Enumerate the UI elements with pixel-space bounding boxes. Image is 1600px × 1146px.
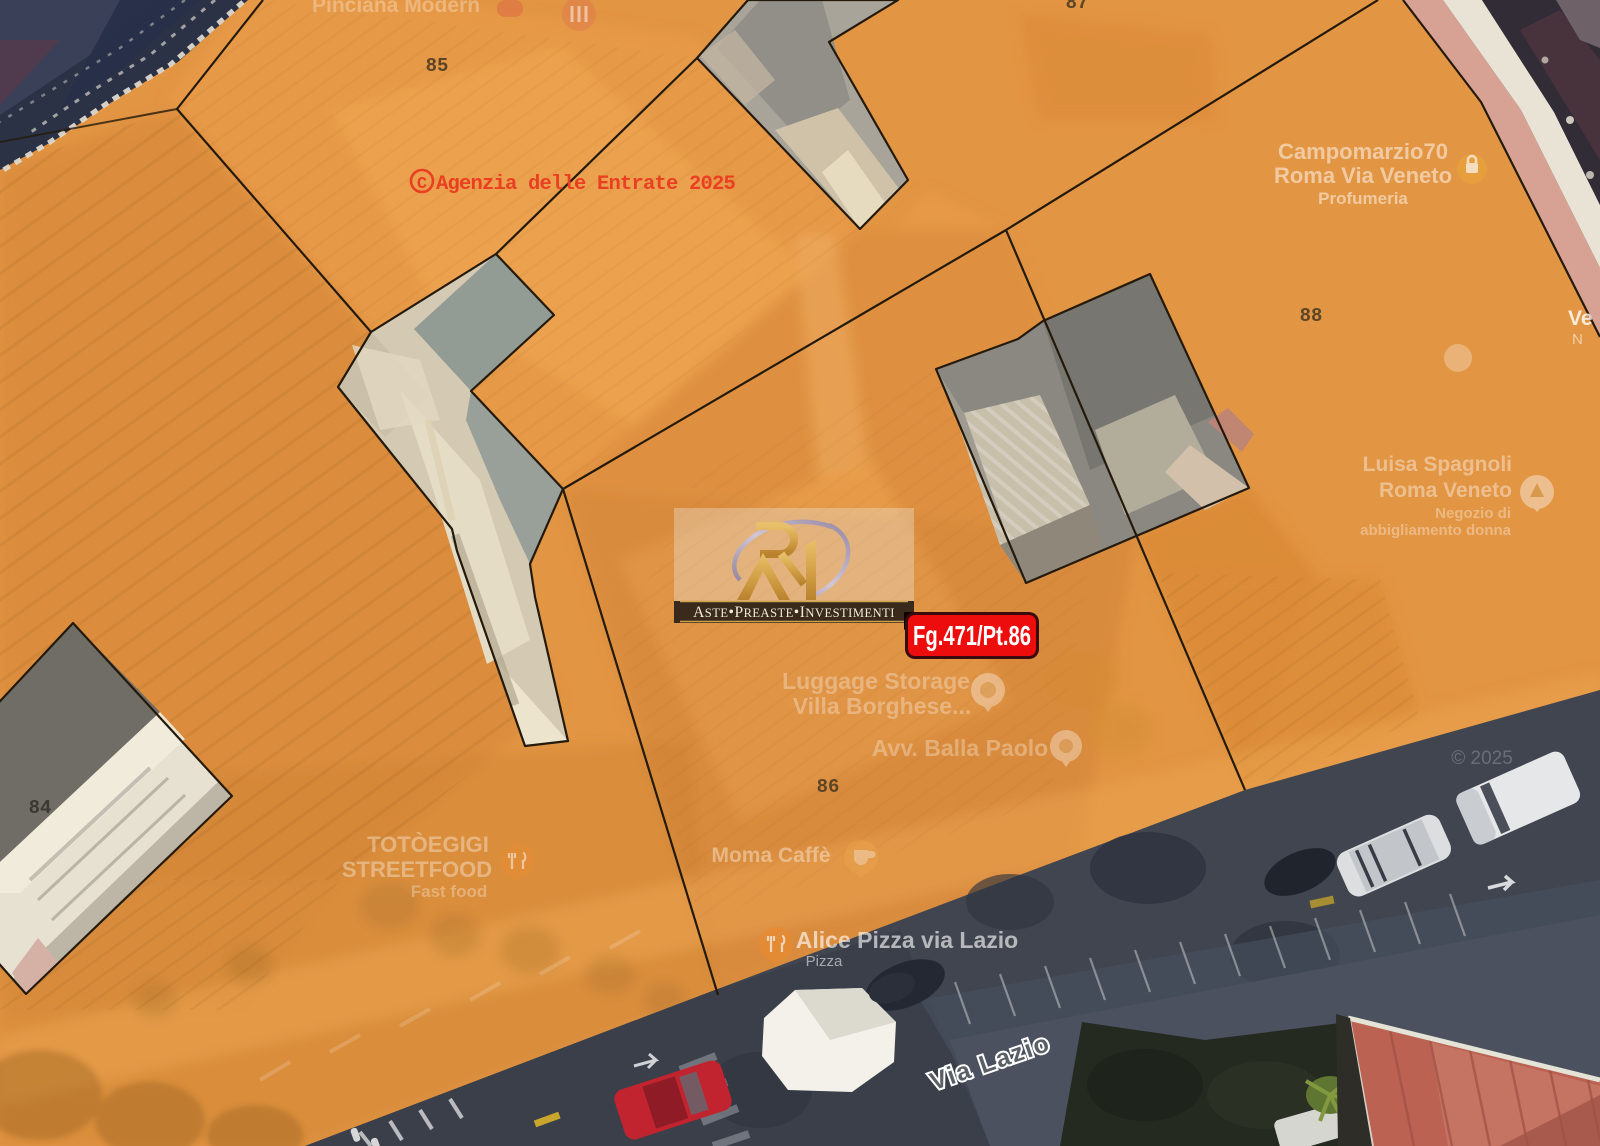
- svg-text:abbigliamento donna: abbigliamento donna: [1360, 522, 1511, 539]
- svg-text:Negozio di: Negozio di: [1435, 505, 1511, 522]
- svg-text:ASTE•PREASTE•INVESTIMENTI: ASTE•PREASTE•INVESTIMENTI: [693, 604, 895, 621]
- svg-text:Fg.471/Pt.86: Fg.471/Pt.86: [913, 620, 1031, 651]
- svg-text:Profumeria: Profumeria: [1318, 189, 1408, 208]
- svg-text:© 2025: © 2025: [1451, 748, 1513, 769]
- svg-text:Luisa Spagnoli: Luisa Spagnoli: [1363, 453, 1512, 476]
- svg-text:TOTÒEGIGI: TOTÒEGIGI: [367, 832, 489, 857]
- svg-text:C: C: [417, 175, 427, 194]
- svg-text:Avv. Balla Paolo: Avv. Balla Paolo: [872, 735, 1048, 761]
- svg-text:Alice Pizza via Lazio: Alice Pizza via Lazio: [796, 927, 1018, 953]
- svg-text:87: 87: [1066, 0, 1089, 14]
- svg-text:N: N: [1572, 331, 1583, 348]
- svg-text:Moma Caffè: Moma Caffè: [711, 844, 830, 867]
- svg-text:86: 86: [817, 776, 840, 798]
- svg-text:Roma Via Veneto: Roma Via Veneto: [1274, 163, 1452, 188]
- svg-text:Luggage Storage: Luggage Storage: [782, 668, 970, 694]
- svg-text:Villa Borghese...: Villa Borghese...: [793, 693, 972, 719]
- svg-text:Pizza: Pizza: [806, 953, 843, 970]
- svg-text:STREETFOOD: STREETFOOD: [342, 857, 492, 882]
- svg-text:Agenzia delle Entrate 2025: Agenzia delle Entrate 2025: [436, 173, 736, 196]
- svg-text:Ve: Ve: [1568, 307, 1593, 330]
- svg-text:Campomarzio70: Campomarzio70: [1278, 139, 1448, 164]
- svg-text:84: 84: [29, 797, 52, 819]
- svg-text:85: 85: [426, 55, 449, 77]
- svg-text:Pinciana Modern: Pinciana Modern: [312, 0, 480, 17]
- svg-text:Roma Veneto: Roma Veneto: [1379, 479, 1512, 502]
- svg-text:88: 88: [1300, 305, 1323, 327]
- svg-text:Fast food: Fast food: [411, 882, 488, 901]
